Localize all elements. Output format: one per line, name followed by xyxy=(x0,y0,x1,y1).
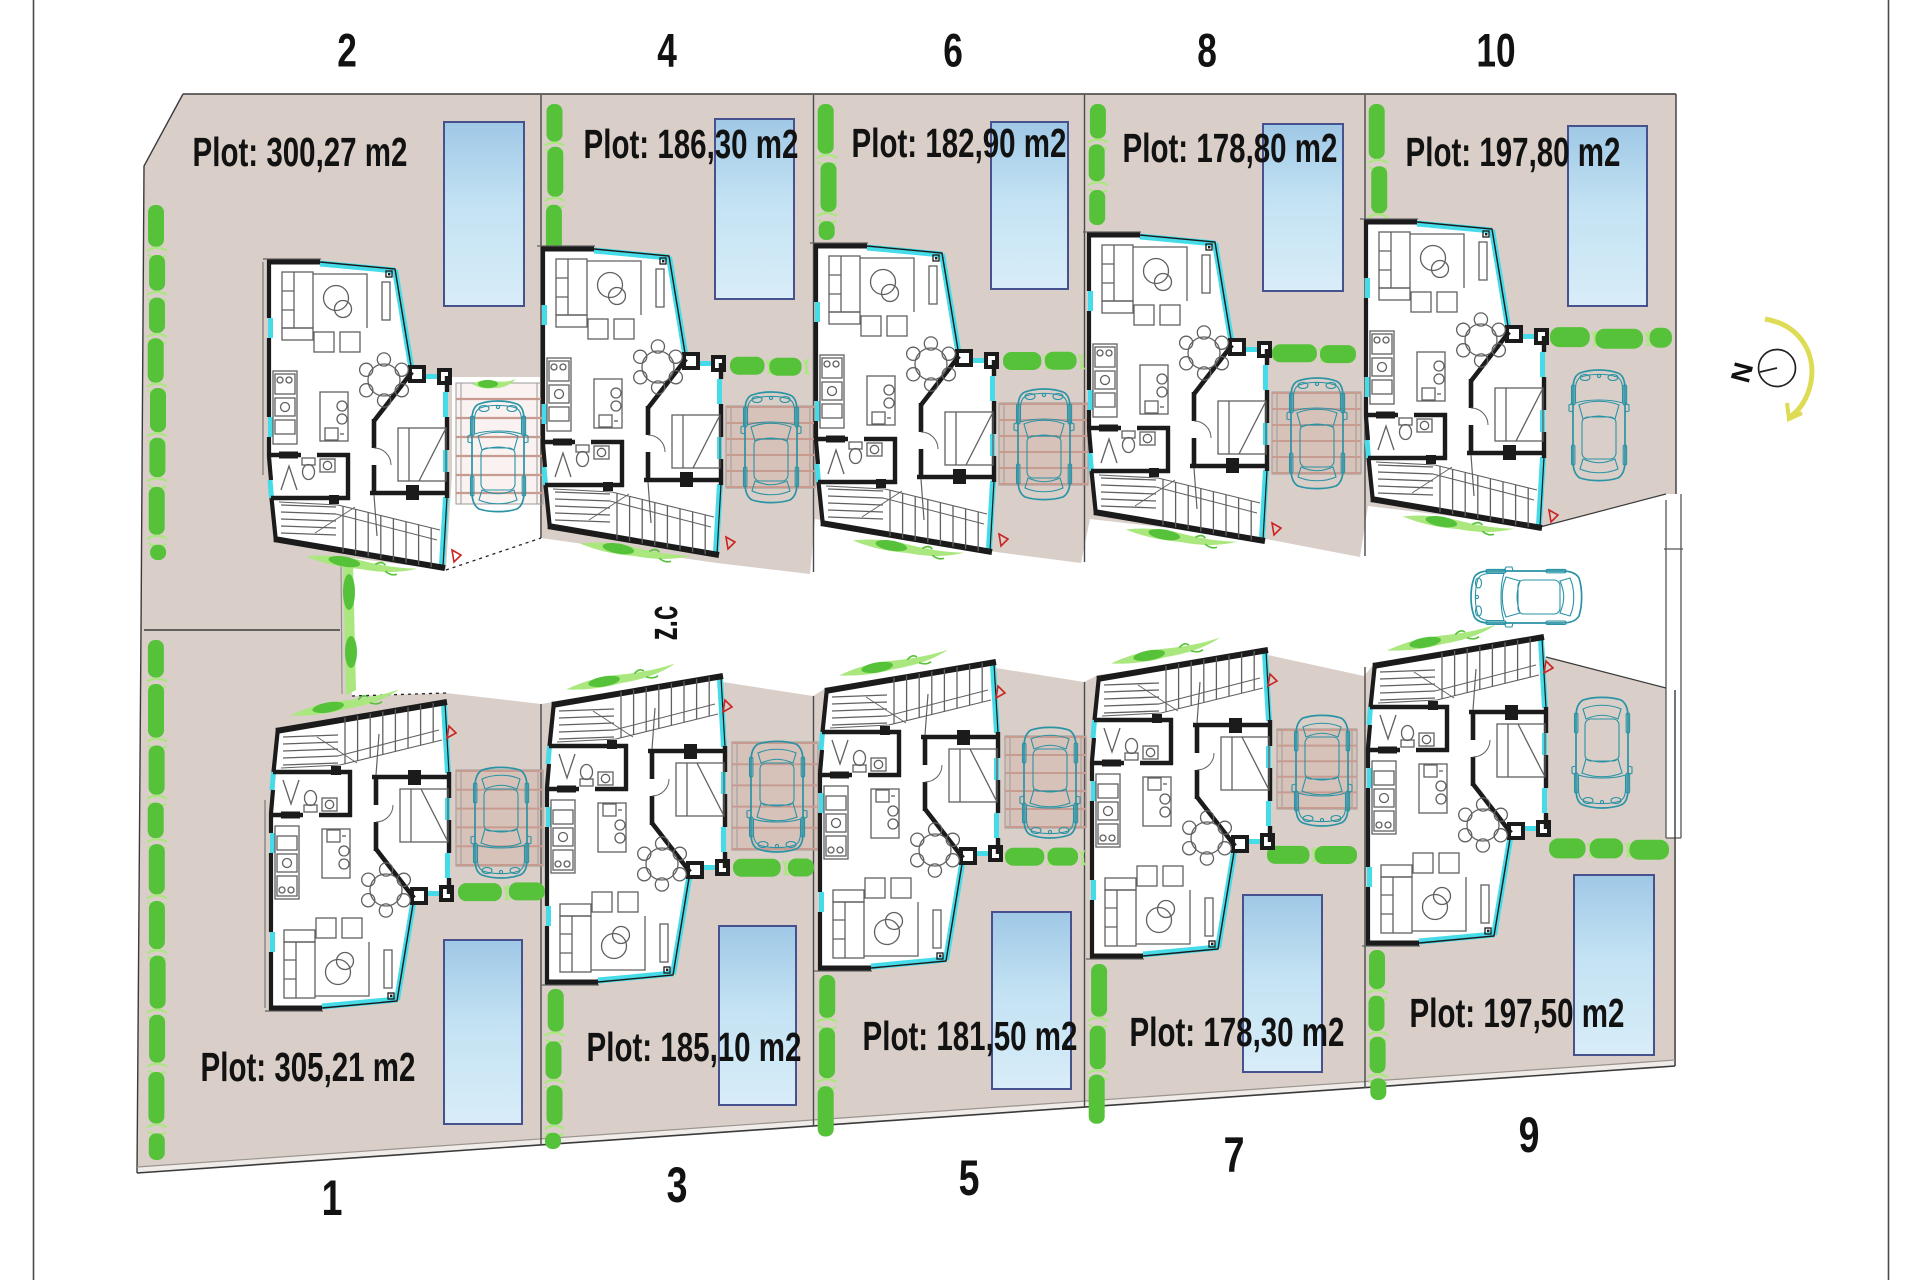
svg-text:Plot: 182,90 m2: Plot: 182,90 m2 xyxy=(852,120,1067,166)
svg-text:Plot: 181,50 m2: Plot: 181,50 m2 xyxy=(863,1013,1078,1059)
svg-text:Plot: 178,30 m2: Plot: 178,30 m2 xyxy=(1130,1009,1345,1055)
svg-text:Plot: 178,80 m2: Plot: 178,80 m2 xyxy=(1123,125,1338,171)
svg-text:6: 6 xyxy=(943,23,963,76)
svg-text:Plot: 197,80 m2: Plot: 197,80 m2 xyxy=(1406,129,1621,175)
svg-text:Plot: 197,50 m2: Plot: 197,50 m2 xyxy=(1410,990,1625,1036)
svg-text:10: 10 xyxy=(1476,23,1515,76)
svg-text:8: 8 xyxy=(1197,23,1217,76)
svg-text:z.c: z.c xyxy=(640,606,687,641)
svg-text:1: 1 xyxy=(322,1171,343,1226)
svg-text:Plot: 186,30 m2: Plot: 186,30 m2 xyxy=(584,121,799,167)
svg-text:7: 7 xyxy=(1224,1128,1245,1183)
svg-text:4: 4 xyxy=(657,23,677,76)
svg-text:Plot: 305,21 m2: Plot: 305,21 m2 xyxy=(201,1044,416,1090)
svg-text:Plot: 300,27 m2: Plot: 300,27 m2 xyxy=(193,129,408,175)
svg-text:9: 9 xyxy=(1519,1108,1540,1163)
svg-text:5: 5 xyxy=(959,1151,980,1206)
svg-text:2: 2 xyxy=(337,23,357,76)
svg-text:Plot: 185,10 m2: Plot: 185,10 m2 xyxy=(587,1024,802,1070)
svg-text:3: 3 xyxy=(667,1158,688,1213)
